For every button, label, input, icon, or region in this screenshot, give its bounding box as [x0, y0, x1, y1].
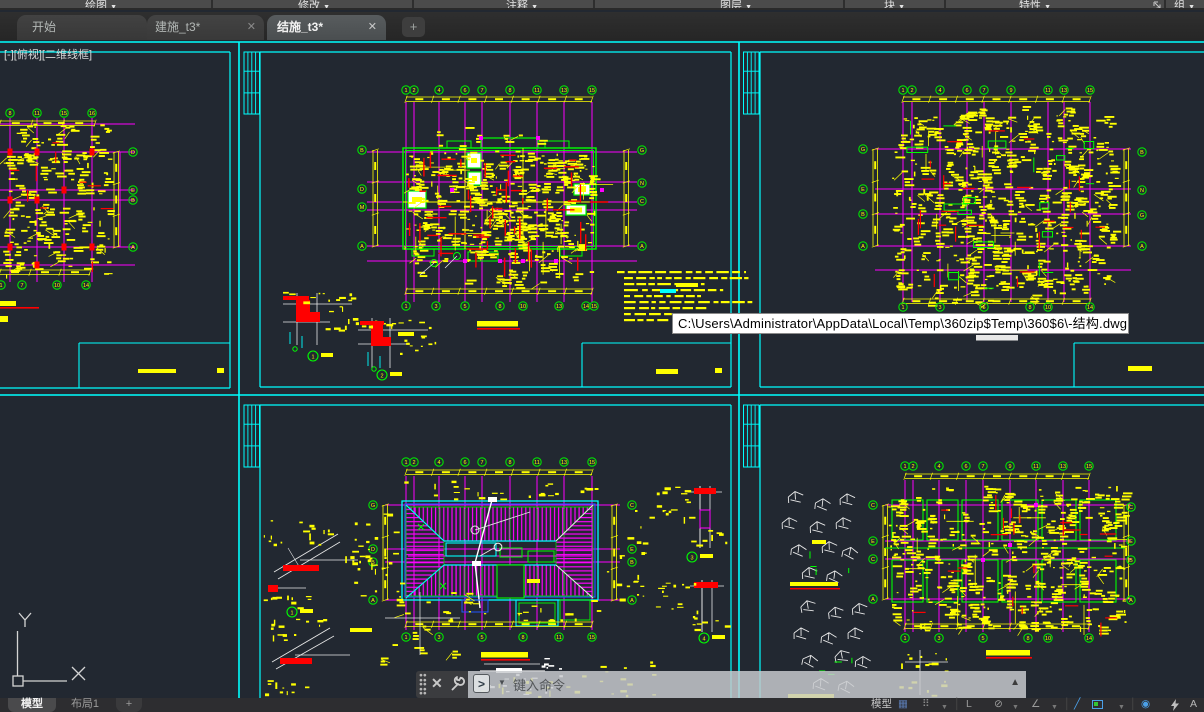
- svg-text:11: 11: [1045, 88, 1051, 94]
- svg-text:E: E: [630, 547, 634, 553]
- svg-text:[-][俯视][二维线框]: [-][俯视][二维线框]: [4, 47, 92, 61]
- svg-text:8: 8: [508, 460, 511, 466]
- svg-text:D: D: [360, 187, 364, 193]
- svg-text:3: 3: [437, 635, 440, 641]
- svg-text:2: 2: [910, 88, 913, 94]
- svg-text:11: 11: [556, 635, 562, 641]
- svg-text:15: 15: [589, 88, 595, 94]
- svg-text:5: 5: [480, 635, 483, 641]
- svg-text:11: 11: [534, 88, 540, 94]
- svg-text:G: G: [371, 503, 375, 509]
- svg-text:8: 8: [1028, 305, 1031, 311]
- svg-text:C: C: [1129, 505, 1133, 511]
- svg-text:A: A: [360, 244, 364, 250]
- svg-text:B: B: [1129, 558, 1133, 564]
- svg-text:A: A: [630, 598, 634, 604]
- svg-text:N: N: [640, 181, 644, 187]
- svg-text:E: E: [1129, 539, 1133, 545]
- svg-text:15: 15: [1087, 88, 1093, 94]
- svg-text:C: C: [630, 503, 634, 509]
- svg-text:1: 1: [311, 354, 314, 360]
- svg-text:C: C: [871, 557, 875, 563]
- svg-text:16: 16: [89, 111, 95, 117]
- svg-text:B: B: [861, 212, 865, 218]
- svg-text:13: 13: [561, 460, 567, 466]
- svg-text:8: 8: [498, 304, 501, 310]
- svg-text:15: 15: [591, 304, 597, 310]
- svg-text:11: 11: [534, 460, 540, 466]
- svg-text:1: 1: [903, 636, 906, 642]
- svg-text:E: E: [871, 539, 875, 545]
- svg-text:B: B: [630, 560, 634, 566]
- svg-text:10: 10: [1045, 305, 1051, 311]
- svg-text:7: 7: [480, 460, 483, 466]
- svg-text:14: 14: [583, 304, 589, 310]
- svg-text:13: 13: [1061, 88, 1067, 94]
- svg-text:C: C: [871, 503, 875, 509]
- svg-text:A: A: [131, 245, 135, 251]
- svg-text:1: 1: [903, 464, 906, 470]
- svg-text:C: C: [640, 199, 644, 205]
- svg-text:4: 4: [437, 460, 440, 466]
- svg-text:D: D: [131, 150, 135, 156]
- svg-text:6: 6: [463, 88, 466, 94]
- svg-text:6: 6: [964, 464, 967, 470]
- svg-text:G: G: [640, 148, 644, 154]
- svg-text:1: 1: [901, 88, 904, 94]
- svg-text:7: 7: [20, 283, 23, 289]
- svg-text:A: A: [871, 597, 875, 603]
- svg-text:5: 5: [981, 636, 984, 642]
- svg-text:1: 1: [901, 305, 904, 311]
- svg-text:3: 3: [938, 305, 941, 311]
- svg-text:6: 6: [965, 88, 968, 94]
- svg-text:A: A: [1129, 598, 1133, 604]
- svg-text:15: 15: [589, 635, 595, 641]
- svg-text:3: 3: [690, 555, 693, 561]
- svg-text:D: D: [371, 547, 375, 553]
- svg-text:7: 7: [480, 88, 483, 94]
- svg-text:15: 15: [589, 460, 595, 466]
- svg-text:B: B: [360, 148, 364, 154]
- svg-text:G: G: [1140, 213, 1144, 219]
- svg-text:G: G: [861, 147, 865, 153]
- svg-text:13: 13: [1060, 464, 1066, 470]
- svg-text:14: 14: [1087, 305, 1093, 311]
- svg-text:4: 4: [702, 636, 705, 642]
- svg-text:9: 9: [1008, 464, 1011, 470]
- svg-text:A: A: [1140, 244, 1144, 250]
- svg-text:B: B: [131, 198, 135, 204]
- svg-text:8: 8: [521, 635, 524, 641]
- svg-text:2: 2: [911, 464, 914, 470]
- svg-text:1: 1: [404, 460, 407, 466]
- svg-text:9: 9: [1009, 88, 1012, 94]
- svg-text:1: 1: [404, 304, 407, 310]
- svg-text:2: 2: [412, 88, 415, 94]
- svg-text:4: 4: [938, 88, 941, 94]
- svg-text:14: 14: [83, 283, 89, 289]
- svg-text:7: 7: [981, 464, 984, 470]
- svg-text:1: 1: [404, 88, 407, 94]
- svg-text:N: N: [1140, 188, 1144, 194]
- svg-text:E: E: [131, 188, 135, 194]
- svg-text:2: 2: [412, 460, 415, 466]
- svg-text:1: 1: [404, 635, 407, 641]
- svg-text:2: 2: [380, 373, 383, 379]
- svg-text:A: A: [371, 598, 375, 604]
- svg-text:1: 1: [290, 610, 293, 616]
- svg-text:10: 10: [1045, 636, 1051, 642]
- svg-text:1: 1: [0, 283, 3, 289]
- svg-text:M: M: [360, 205, 365, 211]
- svg-text:10: 10: [520, 304, 526, 310]
- svg-text:8: 8: [1026, 636, 1029, 642]
- svg-text:4: 4: [937, 464, 940, 470]
- svg-text:10: 10: [54, 283, 60, 289]
- svg-text:8: 8: [8, 111, 11, 117]
- svg-text:14: 14: [1086, 636, 1092, 642]
- svg-text:A: A: [640, 244, 644, 250]
- svg-text:11: 11: [34, 111, 40, 117]
- svg-text:3: 3: [937, 636, 940, 642]
- svg-text:5: 5: [982, 305, 985, 311]
- svg-text:15: 15: [61, 111, 67, 117]
- svg-text:6: 6: [463, 460, 466, 466]
- svg-text:3: 3: [434, 304, 437, 310]
- svg-text:15: 15: [1086, 464, 1092, 470]
- svg-text:A: A: [861, 244, 865, 250]
- svg-text:13: 13: [556, 304, 562, 310]
- svg-text:11: 11: [1033, 464, 1039, 470]
- svg-text:7: 7: [982, 88, 985, 94]
- svg-text:4: 4: [437, 88, 440, 94]
- svg-text:5: 5: [463, 304, 466, 310]
- svg-text:8: 8: [508, 88, 511, 94]
- svg-text:13: 13: [561, 88, 567, 94]
- svg-text:E: E: [861, 187, 865, 193]
- svg-text:B: B: [1140, 150, 1144, 156]
